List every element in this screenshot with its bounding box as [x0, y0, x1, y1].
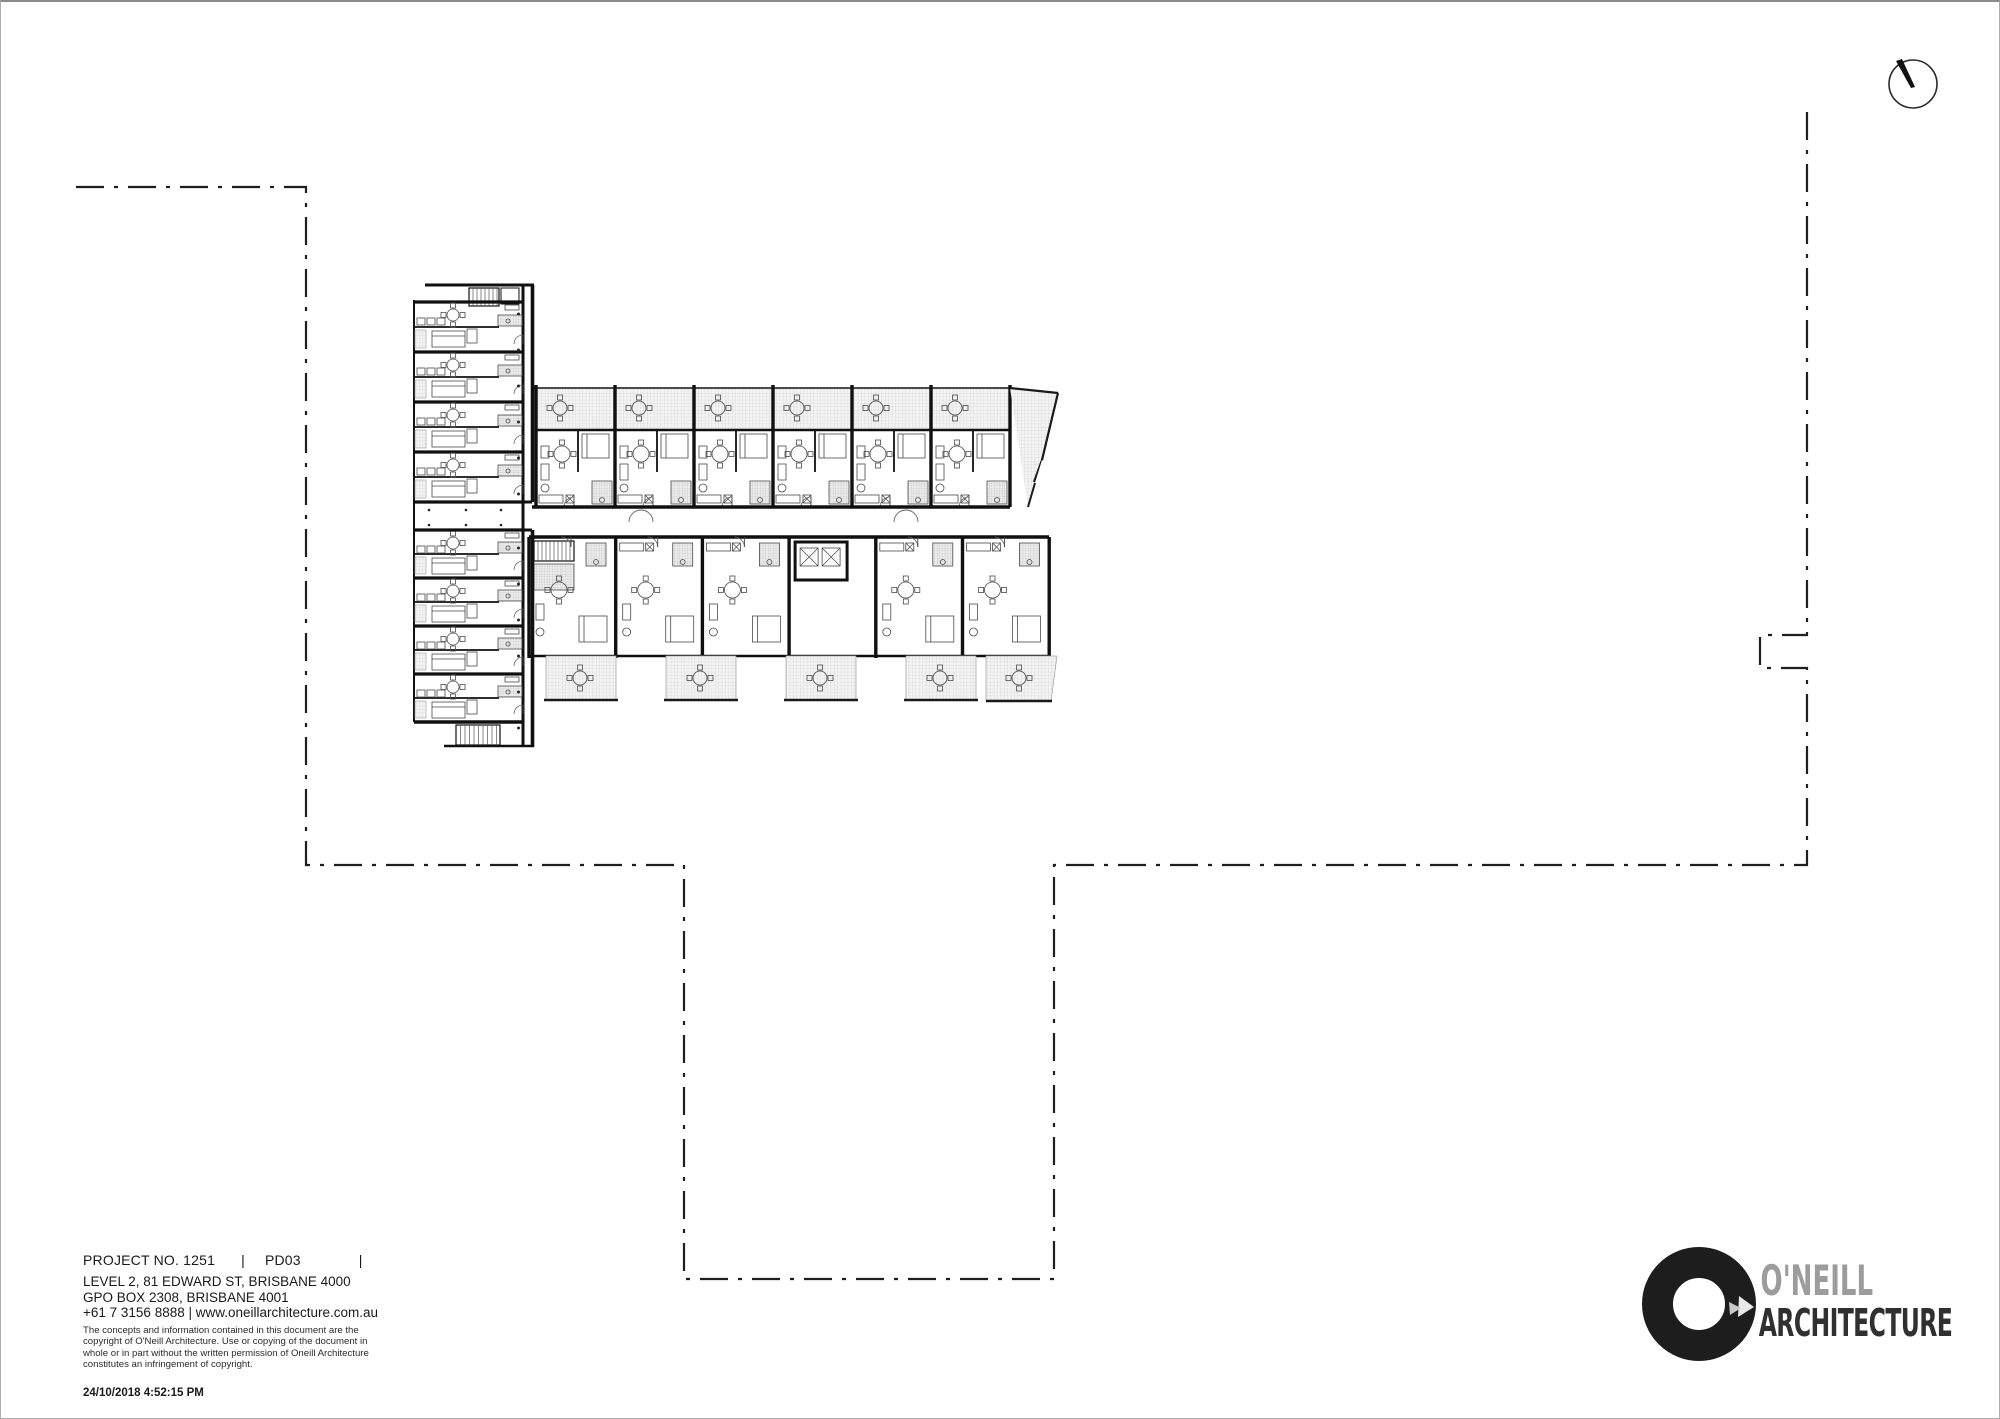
north-indicator-icon	[1889, 59, 1937, 108]
project-number-row: PROJECT NO. 1251|PD03|	[83, 1252, 503, 1268]
wing-module	[414, 530, 523, 574]
copyright-line: constitutes an infringement of copyright…	[83, 1359, 503, 1371]
wing-module	[414, 452, 523, 498]
wing-module	[414, 626, 523, 670]
separator: |	[359, 1252, 363, 1268]
top-row-end-balcony	[1010, 388, 1058, 507]
wing-module	[414, 402, 523, 448]
address-line-1: LEVEL 2, 81 EDWARD ST, BRISBANE 4000	[83, 1274, 503, 1290]
separator: |	[241, 1252, 245, 1268]
bottom-row-units	[529, 537, 1049, 658]
lift-core	[795, 542, 847, 580]
office-address: LEVEL 2, 81 EDWARD ST, BRISBANE 4000 GPO…	[83, 1274, 503, 1321]
floor-plan-drawing	[414, 285, 1058, 747]
bottom-row-unit	[880, 537, 954, 642]
logo-name-bottom: ARCHITECTURE	[1759, 1302, 1953, 1345]
address-line-2: GPO BOX 2308, BRISBANE 4001	[83, 1290, 503, 1306]
company-logo: O'NEILL ARCHITECTURE	[1658, 1258, 1953, 1346]
wing-module	[414, 302, 523, 348]
wing-corridor	[414, 502, 532, 530]
title-block: PROJECT NO. 1251|PD03| LEVEL 2, 81 EDWAR…	[83, 1252, 503, 1371]
logo-name-top: O'NEILL	[1761, 1258, 1874, 1306]
bottom-row-unit	[620, 537, 694, 642]
bottom-row-unit	[706, 537, 780, 642]
print-timestamp: 24/10/2018 4:52:15 PM	[83, 1387, 204, 1399]
plan-canvas: O'NEILL ARCHITECTURE	[1, 2, 2000, 1419]
central-corridor	[529, 507, 1049, 537]
document-code: PD03	[265, 1252, 301, 1268]
project-number: PROJECT NO. 1251	[83, 1252, 215, 1268]
logo-ring-icon	[1658, 1263, 1741, 1346]
copyright-line: whole or in part without the written per…	[83, 1348, 503, 1360]
wing-module	[414, 578, 523, 622]
copyright-line: The concepts and information contained i…	[83, 1325, 503, 1337]
copyright-notice: The concepts and information contained i…	[83, 1325, 503, 1371]
wing-module	[414, 674, 523, 718]
bottom-balconies	[544, 656, 1057, 701]
bottom-row-unit	[967, 537, 1041, 642]
copyright-line: copyright of O'Neill Architecture. Use o…	[83, 1336, 503, 1348]
contact-line: +61 7 3156 8888 | www.oneillarchitecture…	[83, 1305, 503, 1321]
left-wing	[414, 285, 534, 747]
top-row-units	[533, 385, 1010, 507]
wing-module	[414, 352, 523, 398]
bottom-row-unit	[534, 537, 607, 642]
drawing-sheet: O'NEILL ARCHITECTURE PROJECT NO. 1251|PD…	[0, 0, 2000, 1419]
